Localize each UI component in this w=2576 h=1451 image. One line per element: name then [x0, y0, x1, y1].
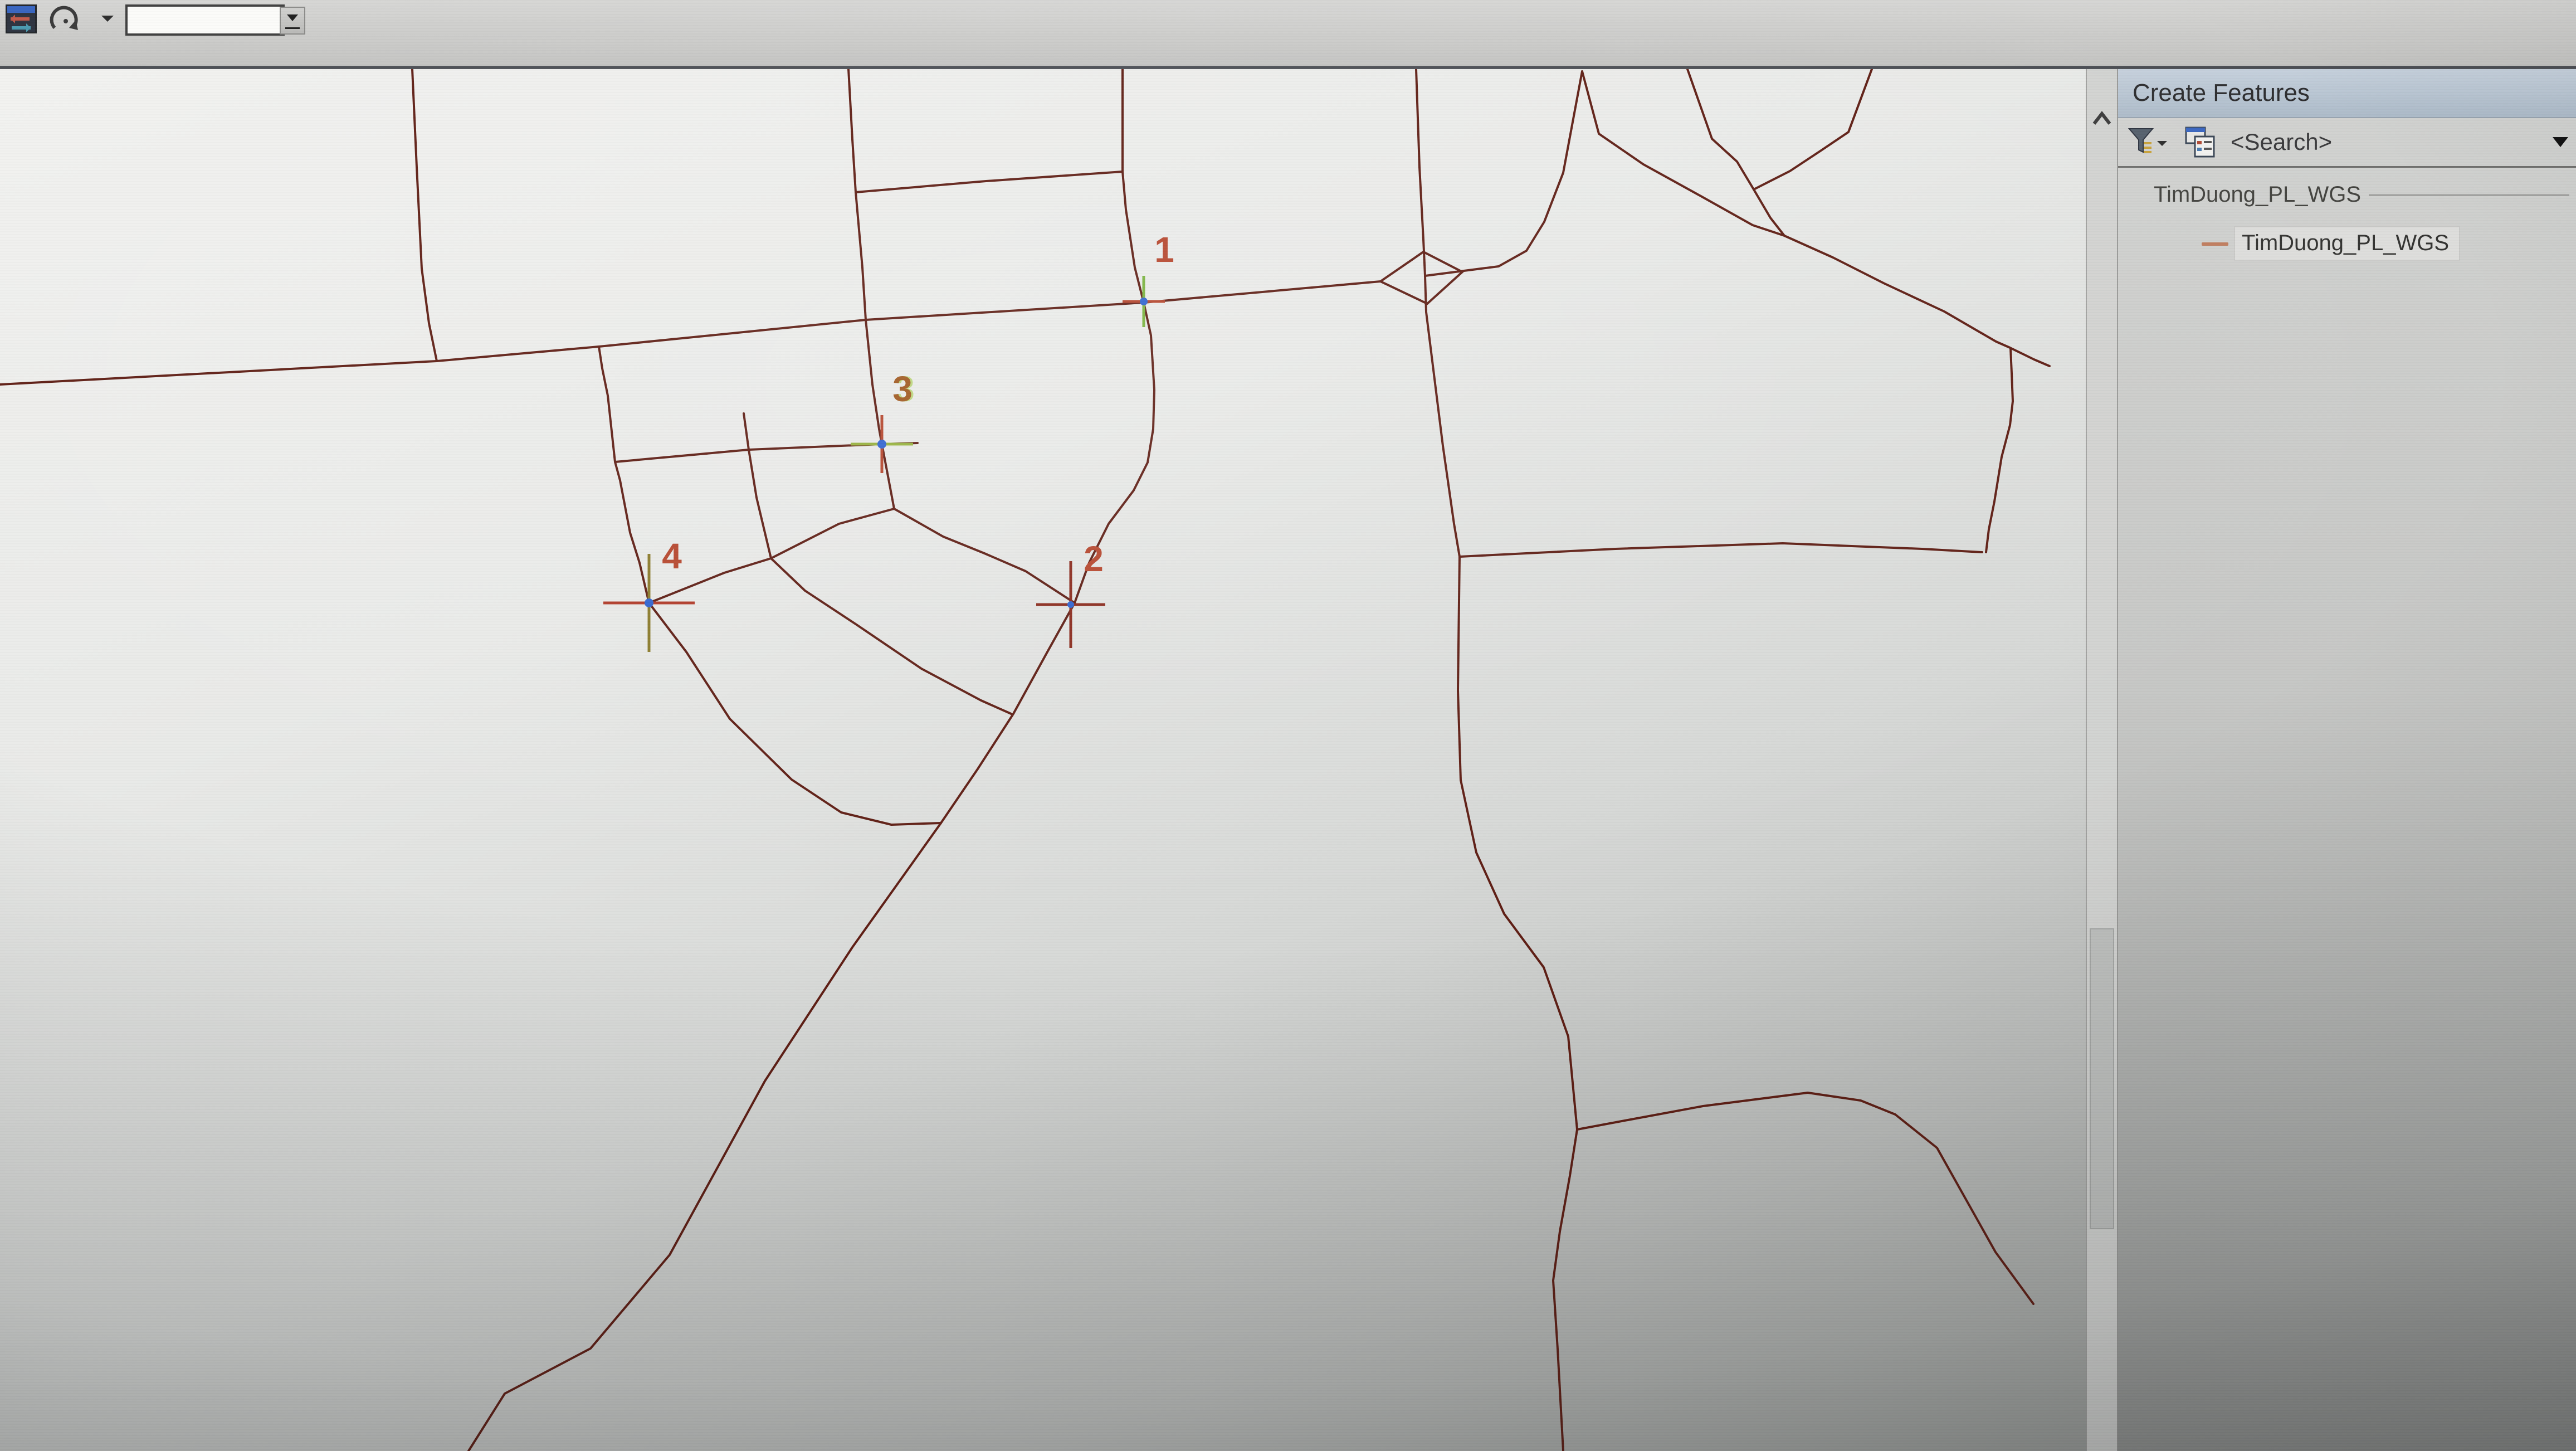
- panel-toolbar: <Search>: [2118, 118, 2576, 166]
- dropdown-underline: [285, 27, 300, 29]
- filter-templates-button[interactable]: [2128, 128, 2154, 157]
- road-arc-northeast[interactable]: [1425, 71, 2050, 366]
- layer-group-header[interactable]: TimDuong_PL_WGS: [2154, 182, 2569, 207]
- map-label-4: 4: [662, 536, 682, 576]
- top-toolbar: [0, 0, 2576, 69]
- vertex-1-dot: [1140, 298, 1148, 305]
- feature-template-item[interactable]: TimDuong_PL_WGS: [2202, 226, 2576, 261]
- editor-window-icon-titlebar: [7, 6, 35, 13]
- rotate-tool-button[interactable]: [47, 3, 86, 37]
- map-vertical-scrollbar[interactable]: [2086, 69, 2118, 1451]
- map-label-3: 3: [892, 369, 913, 409]
- road-ne-branch-a[interactable]: [1687, 69, 1784, 236]
- road-vertical-left[interactable]: [412, 69, 437, 361]
- road-river-route[interactable]: [1416, 69, 1577, 1451]
- road-elbow-to-2[interactable]: [894, 509, 1075, 603]
- line-symbol-icon: [2202, 242, 2228, 246]
- scroll-up-button[interactable]: [2087, 108, 2117, 147]
- road-ne-branch-b[interactable]: [1754, 69, 1872, 189]
- map-canvas[interactable]: 1234: [0, 69, 2086, 1451]
- vertex-4-dot: [645, 598, 653, 607]
- panel-dropdown-triangle[interactable]: [2553, 137, 2568, 155]
- road-vertical-3-connector[interactable]: [1986, 348, 2013, 552]
- road-diagonal-4-to-elbow[interactable]: [649, 509, 894, 603]
- search-input[interactable]: <Search>: [2231, 129, 2332, 155]
- chevron-up-icon: [2090, 108, 2114, 130]
- road-horizontal-mid-right[interactable]: [1460, 543, 1982, 557]
- road-south-branch[interactable]: [1577, 1093, 2033, 1304]
- panel-title: Create Features: [2133, 79, 2310, 107]
- organize-templates-button[interactable]: [2185, 126, 2216, 158]
- editor-window-icon[interactable]: [6, 4, 37, 33]
- road-main-horizontal[interactable]: [0, 281, 1380, 384]
- map-label-1: 1: [1154, 230, 1174, 270]
- toolbar-combo-input[interactable]: [125, 4, 285, 36]
- toolbar-dropdown-button[interactable]: [280, 7, 305, 35]
- road-network: 1234: [0, 69, 2086, 1451]
- create-features-panel: Create Features <Search>: [2118, 69, 2576, 1451]
- organize-templates-icon: [2185, 126, 2216, 158]
- map-label-2: 2: [1084, 539, 1104, 579]
- editor-window-icon-arrow-right: [12, 26, 31, 30]
- scrollbar-thumb[interactable]: [2090, 928, 2114, 1229]
- panel-header: Create Features: [2118, 69, 2576, 118]
- rotate-dropdown-caret[interactable]: [101, 16, 114, 28]
- editor-window-icon-arrow-left: [11, 17, 30, 21]
- rotate-icon: [47, 3, 86, 37]
- road-horizontal-through-3[interactable]: [615, 443, 918, 462]
- feature-template-label: TimDuong_PL_WGS: [2234, 226, 2460, 261]
- road-mid-vertical-arc[interactable]: [744, 413, 1011, 714]
- panel-divider: [2118, 166, 2576, 168]
- vertex-3-dot: [877, 440, 886, 449]
- diamond-interchange[interactable]: [1380, 252, 1462, 304]
- funnel-icon: [2128, 128, 2154, 157]
- filter-dropdown-caret[interactable]: [2157, 141, 2167, 151]
- road-main-route-1-2-sw[interactable]: [469, 69, 1154, 1451]
- vertex-2-dot: [1067, 601, 1074, 608]
- group-rule: [2369, 194, 2569, 196]
- layer-group-label: TimDuong_PL_WGS: [2154, 182, 2361, 207]
- dropdown-triangle-icon: [287, 14, 298, 27]
- road-top-connector[interactable]: [856, 172, 1123, 192]
